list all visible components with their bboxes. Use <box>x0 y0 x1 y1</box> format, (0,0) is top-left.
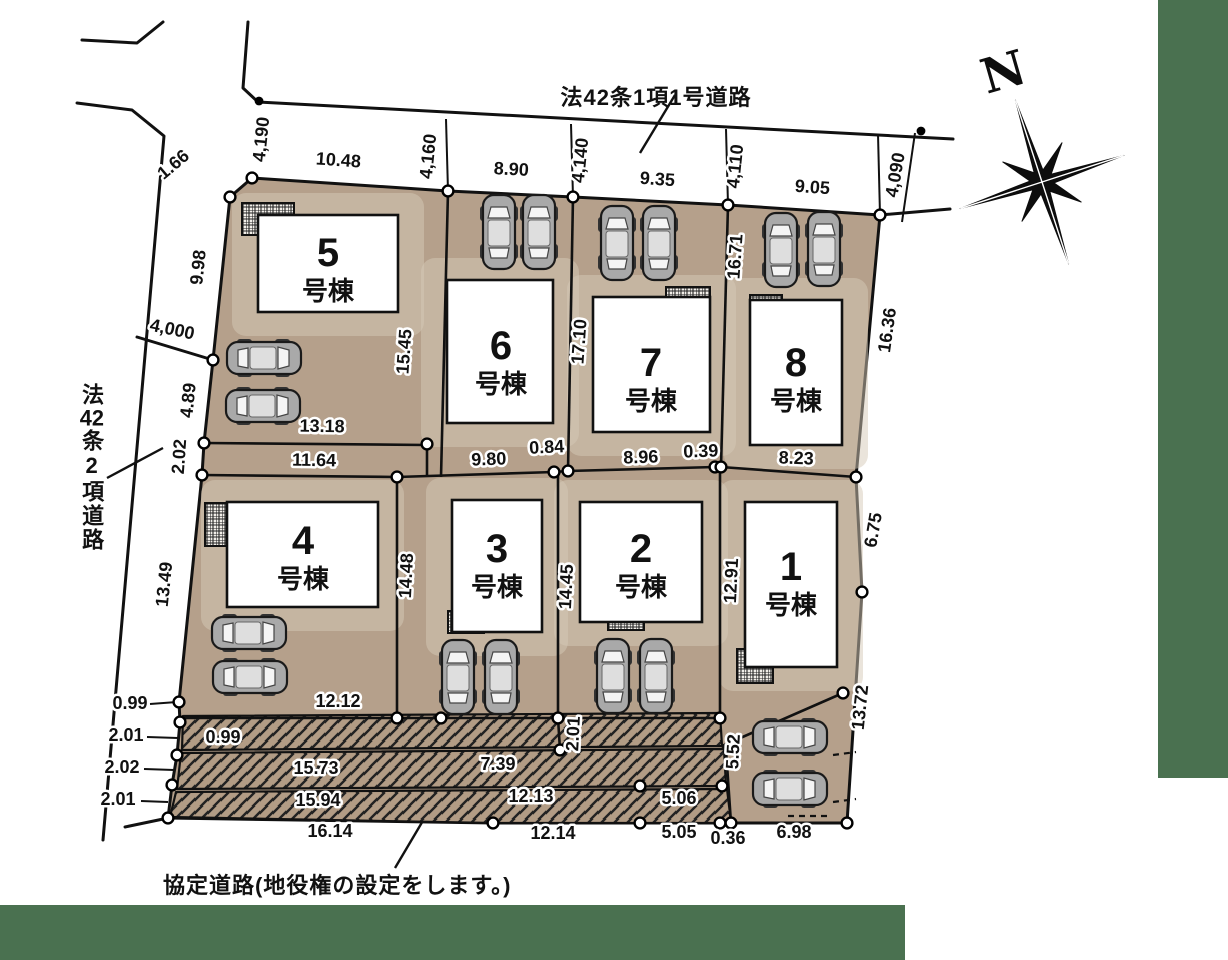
building-lot-7: 7号棟 <box>593 297 710 432</box>
building-suffix: 号棟 <box>770 386 823 416</box>
dimension-label: 12.14 <box>530 823 575 843</box>
car-icon <box>805 212 843 286</box>
survey-point <box>875 210 886 221</box>
dimension-label: 8.23 <box>778 447 814 468</box>
dimension-label: 7.39 <box>480 754 515 774</box>
dimension-label: 0.39 <box>683 440 719 461</box>
car-icon <box>753 718 827 756</box>
green-band-bottom <box>0 905 905 960</box>
dimension-label: 4.89 <box>176 382 200 419</box>
survey-point <box>247 173 258 184</box>
building-suffix: 号棟 <box>302 276 355 306</box>
survey-point <box>422 439 433 450</box>
green-band-right <box>1158 0 1228 778</box>
survey-point <box>392 713 403 724</box>
car-icon <box>482 640 520 714</box>
dimension-label: 0.99 <box>112 693 147 713</box>
survey-point <box>443 186 454 197</box>
survey-point <box>723 200 734 211</box>
survey-point <box>488 818 499 829</box>
dimension-label: 2.01 <box>100 789 135 809</box>
dimension-label: 0.99 <box>205 727 240 747</box>
dimension-label: 5.06 <box>661 788 696 808</box>
building-number: 4 <box>292 519 315 563</box>
building-lot-5: 5号棟 <box>258 215 398 312</box>
survey-point <box>635 781 646 792</box>
building-lot-6: 6号棟 <box>447 280 553 423</box>
building-lot-8: 8号棟 <box>750 300 842 445</box>
building-suffix: 号棟 <box>765 590 818 620</box>
road-marker-point <box>255 97 264 106</box>
dimension-label: 0.36 <box>710 828 745 848</box>
dimension-label: 6.75 <box>860 511 886 549</box>
survey-point <box>568 192 579 203</box>
car-icon <box>213 658 287 696</box>
dimension-label: 6.98 <box>776 822 811 842</box>
agreement-road-note: 協定道路(地役権の設定をします。) <box>163 868 511 900</box>
survey-point <box>635 818 646 829</box>
compass-rose <box>934 74 1151 291</box>
dimension-label: 15.73 <box>293 758 338 778</box>
survey-point <box>392 472 403 483</box>
west-road-label-pre: 法 <box>79 383 104 407</box>
dimension-label: 9.98 <box>186 249 210 286</box>
survey-point <box>553 713 564 724</box>
north-road-label: 法42条1項1号道路 <box>536 80 776 112</box>
survey-point <box>163 813 174 824</box>
survey-point <box>208 355 219 366</box>
road-edge-line <box>137 337 213 360</box>
building-number: 3 <box>486 527 508 571</box>
survey-point <box>225 192 236 203</box>
west-road-label-post: 条2項道路 <box>79 429 104 552</box>
dimension-label: 2.02 <box>104 757 139 777</box>
dimension-tick <box>144 769 174 770</box>
survey-point <box>716 462 727 473</box>
dimension-label: 15.94 <box>295 790 340 810</box>
dimension-label: 5.05 <box>661 822 696 842</box>
survey-point <box>174 697 185 708</box>
road-edge-line <box>243 22 258 102</box>
building-number: 2 <box>630 527 652 571</box>
building-suffix: 号棟 <box>475 369 528 399</box>
dimension-label: 4,140 <box>568 137 593 184</box>
dimension-label: 12.12 <box>315 691 360 711</box>
building-lot-1: 1号棟 <box>745 502 837 667</box>
survey-point <box>715 713 726 724</box>
car-icon <box>439 640 477 714</box>
survey-point <box>549 467 560 478</box>
dimension-label: 4,160 <box>416 133 441 180</box>
survey-point <box>436 713 447 724</box>
building-suffix: 号棟 <box>625 386 678 416</box>
west-road-label-num: 42 <box>79 407 104 429</box>
building-number: 7 <box>640 341 662 385</box>
dimension-label: 13.49 <box>152 561 177 608</box>
car-icon <box>212 614 286 652</box>
dimension-label: 11.64 <box>292 450 336 471</box>
dimension-label: 4,190 <box>249 116 274 163</box>
dimension-tick <box>446 119 448 191</box>
building-suffix: 号棟 <box>615 572 668 602</box>
dimension-label: 17.10 <box>567 318 590 364</box>
dimension-label: 8.90 <box>493 158 529 180</box>
car-icon <box>226 387 300 425</box>
dimension-label: 14.45 <box>555 564 577 610</box>
survey-point <box>857 587 868 598</box>
road-marker-point <box>917 127 926 136</box>
building-lot-4: 4号棟 <box>227 502 378 607</box>
dimension-label: 5.52 <box>722 734 744 770</box>
dimension-label: 9.80 <box>471 448 507 469</box>
car-icon <box>753 770 827 808</box>
survey-point <box>167 780 178 791</box>
car-icon <box>480 195 518 269</box>
site-plan-page: 5号棟6号棟7号棟8号棟4号棟3号棟2号棟1号棟1.664,19010.484,… <box>0 0 1228 960</box>
car-icon <box>637 639 675 713</box>
dimension-label: 14.48 <box>395 553 417 599</box>
building-lot-3: 3号棟 <box>452 500 542 632</box>
building-number: 6 <box>490 324 512 368</box>
car-icon <box>594 639 632 713</box>
car-icon <box>598 206 636 280</box>
dimension-label: 4,090 <box>881 151 909 199</box>
building-suffix: 号棟 <box>471 572 524 602</box>
dimension-label: 2.02 <box>168 438 190 474</box>
survey-point <box>838 688 849 699</box>
dimension-label: 2.01 <box>562 716 584 752</box>
car-icon <box>520 195 558 269</box>
survey-point <box>842 818 853 829</box>
dimension-label: 13.18 <box>299 416 344 437</box>
dimension-label: 4,110 <box>723 143 747 189</box>
survey-point <box>175 717 186 728</box>
survey-point <box>726 818 737 829</box>
dimension-label: 8.96 <box>623 446 659 467</box>
dimension-label: 15.45 <box>392 328 415 374</box>
site-plan-drawing: 5号棟6号棟7号棟8号棟4号棟3号棟2号棟1号棟1.664,19010.484,… <box>0 0 1228 960</box>
agreement-road-strip <box>170 789 731 823</box>
building-number: 8 <box>785 341 807 385</box>
dimension-label: 4,000 <box>148 315 196 344</box>
survey-point <box>172 750 183 761</box>
road-edge-line <box>880 209 950 215</box>
survey-point <box>715 818 726 829</box>
building-suffix: 号棟 <box>277 564 330 594</box>
road-edge-line <box>82 22 163 43</box>
building-lot-2: 2号棟 <box>580 502 702 622</box>
compass-north-letter: N <box>975 40 1033 106</box>
building-number: 5 <box>317 231 339 275</box>
dimension-label: 12.91 <box>720 558 742 604</box>
dimension-label: 10.48 <box>315 148 361 171</box>
car-icon <box>762 213 800 287</box>
dimension-label: 9.05 <box>794 176 830 198</box>
dimension-tick <box>141 801 168 802</box>
survey-point <box>197 470 208 481</box>
survey-point <box>851 472 862 483</box>
survey-point <box>717 781 728 792</box>
car-icon <box>640 206 678 280</box>
dimension-tick <box>147 737 178 738</box>
dimension-label: 16.71 <box>723 233 746 279</box>
dimension-label: 16.14 <box>307 821 352 841</box>
dimension-label: 9.35 <box>639 168 675 190</box>
dimension-tick <box>878 134 880 215</box>
dimension-label: 0.84 <box>529 436 565 458</box>
dimension-label: 2.01 <box>108 725 143 745</box>
car-icon <box>227 339 301 377</box>
west-road-label: 法42条2項道路 <box>80 383 103 552</box>
survey-point <box>563 466 574 477</box>
survey-point <box>199 438 210 449</box>
dimension-label: 12.13 <box>508 786 553 806</box>
dimension-label: 13.72 <box>848 684 873 731</box>
building-number: 1 <box>780 545 802 589</box>
dimension-label: 16.36 <box>874 306 900 353</box>
